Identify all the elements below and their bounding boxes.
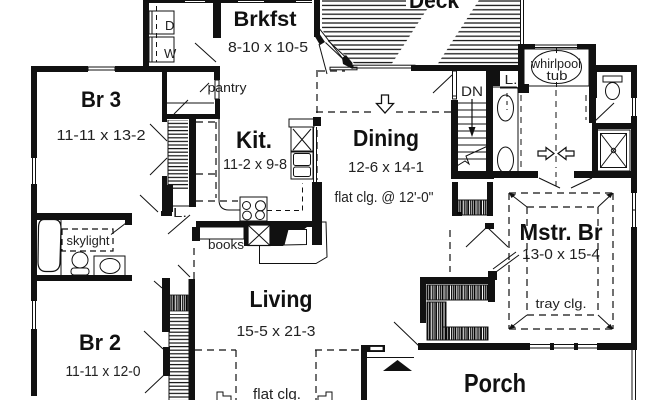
svg-text:W: W bbox=[164, 46, 177, 61]
svg-text:tub: tub bbox=[547, 69, 568, 83]
svg-text:flat clg. @ 12'-0": flat clg. @ 12'-0" bbox=[335, 189, 434, 206]
svg-text:11-2 x 9-8: 11-2 x 9-8 bbox=[223, 156, 287, 173]
svg-text:Porch: Porch bbox=[464, 368, 526, 398]
svg-text:8-10 x 10-5: 8-10 x 10-5 bbox=[228, 39, 308, 56]
svg-text:books: books bbox=[208, 237, 245, 252]
svg-text:Deck: Deck bbox=[409, 0, 460, 13]
svg-text:Br 2: Br 2 bbox=[79, 330, 121, 355]
svg-text:Dining: Dining bbox=[353, 125, 419, 151]
svg-text:pantry: pantry bbox=[208, 80, 248, 95]
svg-text:Br 3: Br 3 bbox=[81, 87, 121, 112]
svg-text:13-0 x 15-4: 13-0 x 15-4 bbox=[522, 246, 600, 263]
svg-text:12-6 x 14-1: 12-6 x 14-1 bbox=[348, 159, 424, 176]
svg-text:Brkfst: Brkfst bbox=[234, 8, 297, 31]
svg-text:tray clg.: tray clg. bbox=[536, 296, 587, 311]
svg-text:L.: L. bbox=[505, 72, 518, 87]
svg-text:11-11 x 12-0: 11-11 x 12-0 bbox=[66, 363, 141, 380]
svg-text:L.: L. bbox=[173, 205, 187, 220]
svg-text:DN: DN bbox=[461, 83, 483, 99]
svg-text:Mstr. Br: Mstr. Br bbox=[520, 219, 603, 245]
svg-text:Living: Living bbox=[250, 286, 313, 312]
svg-text:flat clg.: flat clg. bbox=[253, 386, 301, 400]
svg-text:skylight: skylight bbox=[67, 233, 110, 248]
svg-text:D: D bbox=[165, 18, 174, 33]
svg-text:11-11 x 13-2: 11-11 x 13-2 bbox=[57, 127, 146, 144]
svg-text:Kit.: Kit. bbox=[236, 127, 272, 154]
svg-text:15-5 x 21-3: 15-5 x 21-3 bbox=[237, 323, 316, 340]
